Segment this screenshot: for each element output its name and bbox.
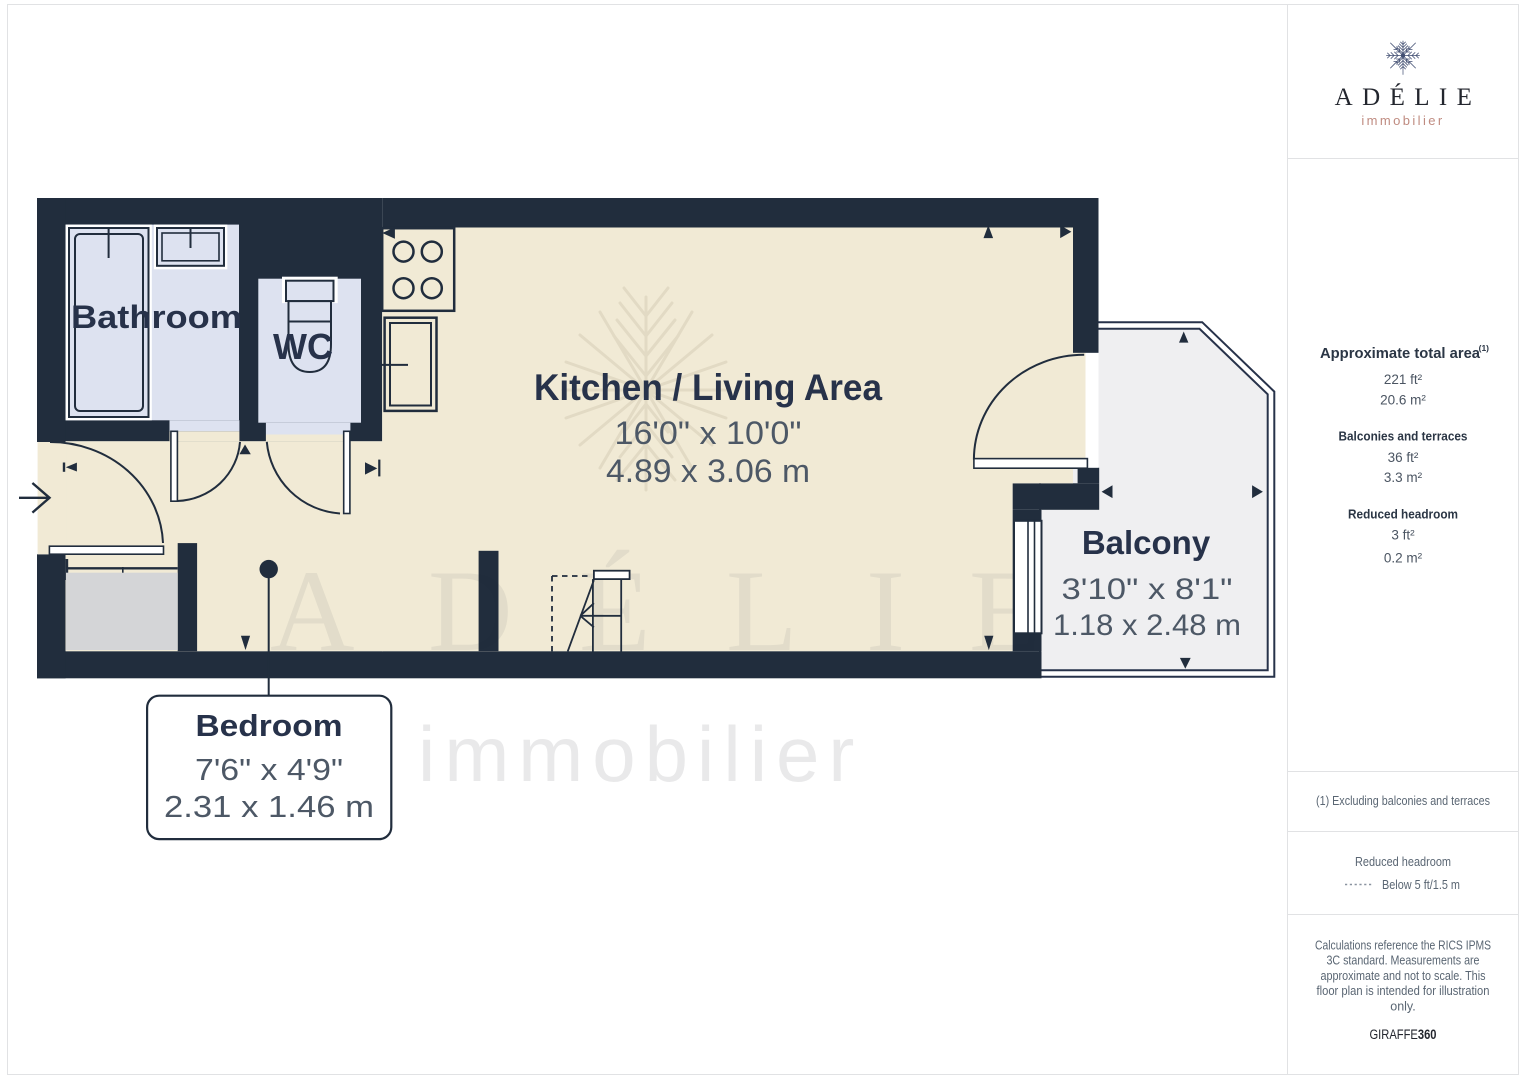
svg-text:Bedroom: Bedroom [196,708,343,743]
svg-text:approximate and not to scale.: approximate and not to scale. This [1321,969,1486,983]
svg-text:(1): (1) [1479,343,1490,353]
svg-text:36 ft²: 36 ft² [1388,450,1419,465]
svg-text:Approximate total area: Approximate total area [1320,345,1481,362]
svg-text:221 ft²: 221 ft² [1384,372,1423,387]
svg-text:only.: only. [1390,999,1415,1013]
svg-text:ADÉLIE: ADÉLIE [1335,83,1482,111]
svg-text:Calculations reference the RIC: Calculations reference the RICS IPMS [1315,939,1491,953]
svg-text:0.2 m²: 0.2 m² [1384,551,1423,566]
svg-text:I: I [866,547,905,676]
svg-text:20.6 m²: 20.6 m² [1380,393,1426,408]
svg-text:1.18 x 2.48 m: 1.18 x 2.48 m [1053,609,1241,642]
svg-text:4.89 x 3.06 m: 4.89 x 3.06 m [606,453,810,489]
svg-text:Reduced headroom: Reduced headroom [1355,855,1451,869]
svg-text:L: L [726,547,797,676]
svg-text:É: É [579,547,650,676]
svg-text:GIRAFFE360: GIRAFFE360 [1370,1027,1437,1042]
svg-text:7'6" x 4'9": 7'6" x 4'9" [195,752,343,787]
svg-text:Below 5 ft/1.5 m: Below 5 ft/1.5 m [1382,878,1460,892]
svg-text:16'0" x 10'0": 16'0" x 10'0" [615,415,802,451]
svg-text:floor plan is intended for ill: floor plan is intended for illustration [1317,984,1490,998]
svg-text:Reduced headroom: Reduced headroom [1348,507,1458,522]
svg-text:WC: WC [273,326,333,367]
svg-text:3 ft²: 3 ft² [1391,528,1415,543]
svg-text:immobilier: immobilier [1361,113,1444,128]
svg-text:D: D [428,547,513,676]
svg-text:2.31 x 1.46 m: 2.31 x 1.46 m [164,789,374,824]
svg-text:3'10" x 8'1": 3'10" x 8'1" [1062,573,1233,606]
svg-text:immobilier: immobilier [418,710,863,798]
svg-text:3.3 m²: 3.3 m² [1384,470,1423,485]
svg-text:(1) Excluding balconies and te: (1) Excluding balconies and terraces [1316,794,1490,808]
svg-text:Kitchen / Living Area: Kitchen / Living Area [534,367,882,408]
svg-text:Balcony: Balcony [1082,524,1211,561]
svg-text:3C standard. Measurements are: 3C standard. Measurements are [1327,954,1480,968]
svg-text:A: A [270,547,355,676]
svg-text:Bathroom: Bathroom [71,299,242,335]
svg-text:Balconies and terraces: Balconies and terraces [1339,429,1468,444]
